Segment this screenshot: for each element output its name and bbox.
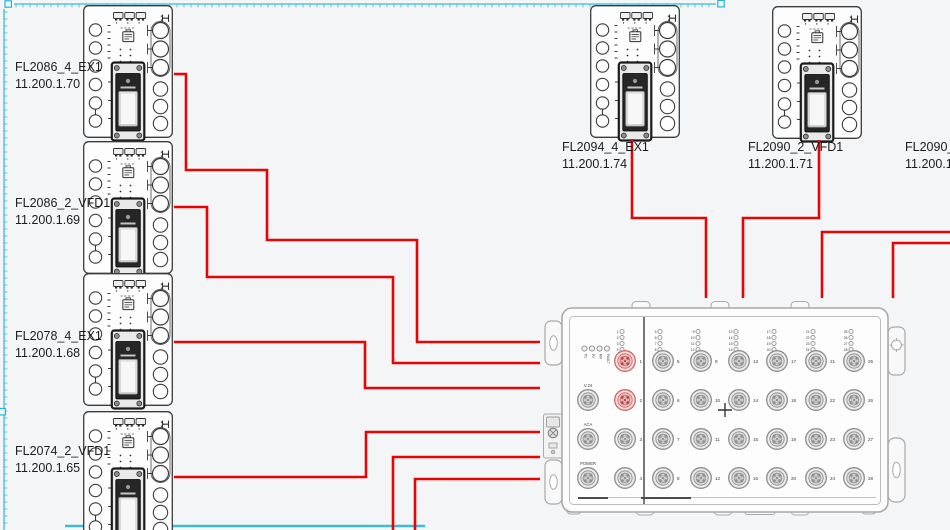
selection-handle[interactable] — [5, 1, 11, 7]
port-led-25 — [849, 329, 853, 333]
switch-port-7 — [653, 429, 674, 450]
port-led-number-2: 2 — [617, 336, 619, 340]
port-led-number-27: 27 — [844, 342, 848, 346]
port-led-number-19: 19 — [767, 342, 771, 346]
port-led-number-23: 23 — [806, 342, 810, 346]
port-number-9: 9 — [715, 359, 718, 364]
port-led-number-8: 8 — [655, 348, 657, 352]
device-label-partial: FL2090_4 11.200.1. — [905, 139, 950, 173]
port-led-17 — [772, 329, 776, 333]
device-name: FL2074_2_VFD1 — [15, 443, 110, 460]
device-module-fl2094-4-ex1[interactable] — [591, 6, 680, 141]
port-led-13 — [734, 329, 738, 333]
device-name: FL2090_4 — [905, 139, 950, 156]
diagram-canvas[interactable]: 1234567891011121314151617181920212223242… — [0, 0, 950, 530]
port-led-9 — [696, 329, 700, 333]
port-number-4: 4 — [640, 476, 643, 481]
device-ip: 11.200.1.74 — [562, 156, 649, 173]
port-led-6 — [658, 335, 662, 339]
port-number-17: 17 — [791, 359, 797, 364]
status-led-label: FAULT — [606, 354, 610, 364]
port-number-2: 2 — [640, 398, 643, 403]
port-number-5: 5 — [677, 359, 680, 364]
port-number-20: 20 — [791, 476, 797, 481]
port-led-number-26: 26 — [844, 336, 848, 340]
port-led-number-15: 15 — [729, 342, 733, 346]
connection-line-6[interactable] — [415, 479, 540, 530]
port-led-11 — [696, 341, 700, 345]
switch-port-2 — [615, 390, 636, 411]
port-led-18 — [772, 335, 776, 339]
switch-port-10 — [691, 390, 712, 411]
device-label: FL2090_2_VFD1 11.200.1.71 — [748, 139, 843, 173]
port-number-25: 25 — [868, 359, 874, 364]
port-led-number-3: 3 — [617, 342, 619, 346]
switch-port-28 — [844, 468, 865, 489]
port-led-10 — [696, 335, 700, 339]
port-led-number-1: 1 — [617, 330, 619, 334]
device-label: FL2094_4_EX1 11.200.1.74 — [562, 139, 649, 173]
aux-port-label: V.24 — [584, 383, 593, 388]
port-led-19 — [772, 341, 776, 345]
device-name: FL2090_2_VFD1 — [748, 139, 843, 156]
port-number-24: 24 — [830, 476, 836, 481]
port-led-number-10: 10 — [691, 336, 695, 340]
switch-port-5 — [653, 351, 674, 372]
port-led-5 — [658, 329, 662, 333]
port-led-7 — [658, 341, 662, 345]
switch-port-aca — [578, 429, 599, 450]
port-led-number-4: 4 — [617, 348, 619, 352]
switch-port-11 — [691, 429, 712, 450]
switch-mount-right — [888, 327, 905, 502]
port-number-12: 12 — [715, 476, 721, 481]
port-led-14 — [734, 335, 738, 339]
port-number-19: 19 — [791, 437, 797, 442]
switch-port-3 — [615, 429, 636, 450]
port-led-15 — [734, 341, 738, 345]
port-led-2 — [620, 335, 624, 339]
switch-port-15 — [729, 429, 750, 450]
switch-port-17 — [767, 351, 788, 372]
status-led-p2 — [589, 346, 594, 351]
device-ip: 11.200.1.69 — [15, 212, 110, 229]
port-led-number-11: 11 — [691, 342, 695, 346]
connection-line-3[interactable] — [174, 342, 540, 388]
device-name: FL2078_4_EX1 — [15, 328, 102, 345]
port-led-26 — [849, 335, 853, 339]
selection-handle[interactable] — [0, 409, 5, 415]
status-led-label: P2 — [591, 354, 595, 358]
selection-handle[interactable] — [718, 1, 724, 7]
switch-port-4 — [615, 468, 636, 489]
port-number-16: 16 — [753, 476, 759, 481]
status-led-fault — [604, 346, 609, 351]
device-label: FL2086_4_EX1 11.200.1.70 — [15, 59, 102, 93]
switch-mount-left — [544, 321, 564, 504]
switch-port-25 — [844, 351, 865, 372]
device-label: FL2086_2_VFD1 11.200.1.69 — [15, 195, 110, 229]
switch-port-18 — [767, 390, 788, 411]
status-led-label: P1 — [584, 354, 588, 358]
port-led-22 — [811, 335, 815, 339]
port-number-7: 7 — [677, 437, 680, 442]
port-led-number-9: 9 — [693, 330, 695, 334]
device-label: FL2074_2_VFD1 11.200.1.65 — [15, 443, 110, 477]
switch-port-13 — [729, 351, 750, 372]
port-number-27: 27 — [868, 437, 874, 442]
port-number-15: 15 — [753, 437, 759, 442]
device-name: FL2086_4_EX1 — [15, 59, 102, 76]
switch-port-1 — [615, 351, 636, 372]
device-ip: 11.200.1.65 — [15, 460, 110, 477]
device-ip: 11.200.1.70 — [15, 76, 102, 93]
status-led-p1 — [582, 346, 587, 351]
port-number-22: 22 — [830, 398, 836, 403]
port-led-number-7: 7 — [655, 342, 657, 346]
aux-port-label: ACA — [584, 422, 593, 427]
switch-port-21 — [806, 351, 827, 372]
port-led-number-6: 6 — [655, 336, 657, 340]
port-led-number-24: 24 — [806, 348, 810, 352]
port-led-number-21: 21 — [806, 330, 810, 334]
port-led-number-28: 28 — [844, 348, 848, 352]
port-led-number-14: 14 — [729, 336, 733, 340]
ethernet-switch[interactable]: 1234567891011121314151617181920212223242… — [544, 302, 906, 516]
port-number-3: 3 — [640, 437, 643, 442]
connection-line-10[interactable] — [893, 243, 950, 298]
port-number-1: 1 — [640, 359, 643, 364]
device-module-fl2090-2-vfd1[interactable] — [773, 7, 862, 142]
port-number-21: 21 — [830, 359, 836, 364]
port-number-28: 28 — [868, 476, 874, 481]
port-number-10: 10 — [715, 398, 721, 403]
switch-port-19 — [767, 429, 788, 450]
port-number-6: 6 — [677, 398, 680, 403]
port-number-13: 13 — [753, 359, 759, 364]
port-led-3 — [620, 341, 624, 345]
port-led-number-13: 13 — [729, 330, 733, 334]
switch-port-14 — [729, 390, 750, 411]
switch-port-16 — [729, 468, 750, 489]
port-led-number-17: 17 — [767, 330, 771, 334]
status-led-label: RM — [599, 354, 603, 359]
switch-port-8 — [653, 468, 674, 489]
port-led-number-12: 12 — [691, 348, 695, 352]
switch-port-23 — [806, 429, 827, 450]
port-number-8: 8 — [677, 476, 680, 481]
port-number-26: 26 — [868, 398, 874, 403]
port-led-number-16: 16 — [729, 348, 733, 352]
device-ip: 11.200.1.68 — [15, 345, 102, 362]
aux-port-label: POWER — [580, 461, 596, 466]
port-number-11: 11 — [715, 437, 720, 442]
switch-port-12 — [691, 468, 712, 489]
device-ip: 11.200.1.71 — [748, 156, 843, 173]
port-number-18: 18 — [791, 398, 797, 403]
switch-port-20 — [767, 468, 788, 489]
switch-port-6 — [653, 390, 674, 411]
port-led-27 — [849, 341, 853, 345]
port-led-number-22: 22 — [806, 336, 810, 340]
status-led-rm — [597, 346, 602, 351]
switch-port-27 — [844, 429, 865, 450]
switch-port-22 — [806, 390, 827, 411]
switch-port-9 — [691, 351, 712, 372]
device-label: FL2078_4_EX1 11.200.1.68 — [15, 328, 102, 362]
device-ip: 11.200.1. — [905, 156, 950, 173]
switch-port-power — [578, 468, 599, 489]
port-number-23: 23 — [830, 437, 836, 442]
connection-line-1[interactable] — [174, 74, 540, 342]
switch-port-26 — [844, 390, 865, 411]
connection-line-2[interactable] — [174, 207, 540, 363]
port-led-23 — [811, 341, 815, 345]
port-led-number-5: 5 — [655, 330, 657, 334]
port-led-number-20: 20 — [767, 348, 771, 352]
port-led-number-18: 18 — [767, 336, 771, 340]
switch-port-v24 — [578, 390, 599, 411]
device-name: FL2086_2_VFD1 — [15, 195, 110, 212]
port-led-number-25: 25 — [844, 330, 848, 334]
diagram-scene: 1234567891011121314151617181920212223242… — [0, 0, 950, 530]
port-led-1 — [620, 329, 624, 333]
port-number-14: 14 — [753, 398, 759, 403]
connection-line-4[interactable] — [174, 432, 540, 477]
port-led-21 — [811, 329, 815, 333]
device-name: FL2094_4_EX1 — [562, 139, 649, 156]
devices-top — [591, 6, 862, 142]
switch-port-24 — [806, 468, 827, 489]
